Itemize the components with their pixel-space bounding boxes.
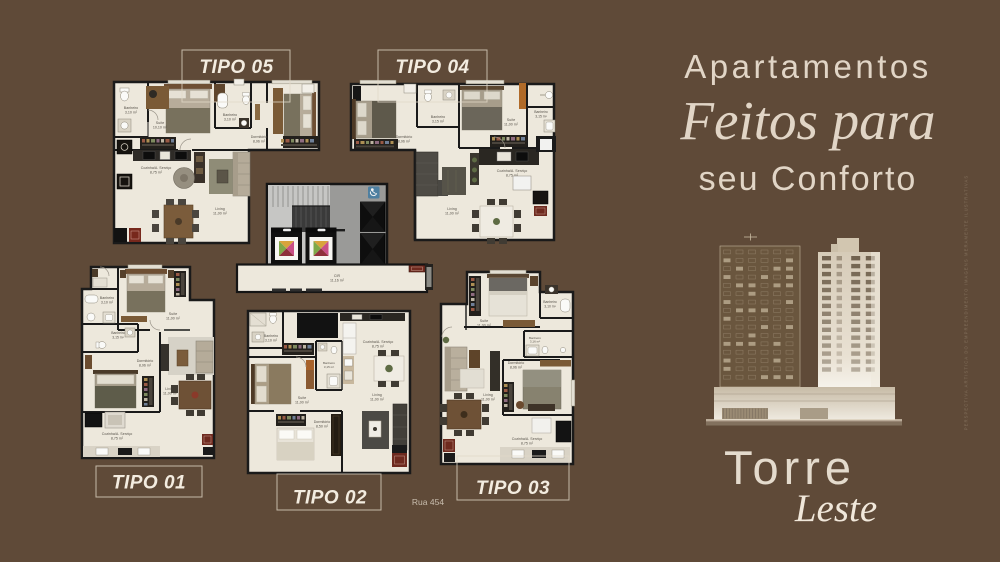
svg-text:10,10 m²: 10,10 m² [153, 126, 168, 130]
svg-text:Living: Living [483, 393, 492, 397]
svg-text:TIPO 01: TIPO 01 [112, 473, 186, 494]
svg-text:TIPO 04: TIPO 04 [395, 57, 469, 78]
svg-text:3,15 m²: 3,15 m² [112, 335, 124, 339]
svg-text:3,10 m²: 3,10 m² [265, 339, 278, 343]
svg-text:11,00 m²: 11,00 m² [477, 324, 492, 328]
svg-text:Suíte: Suíte [169, 312, 177, 316]
svg-text:Banheiro: Banheiro [264, 334, 278, 338]
svg-text:TIPO 02: TIPO 02 [293, 488, 367, 509]
svg-text:11,00 m²: 11,00 m² [481, 398, 496, 402]
svg-text:8,75 m²: 8,75 m² [111, 437, 124, 441]
svg-text:11,00 m²: 11,00 m² [295, 401, 310, 405]
svg-text:8,75 m²: 8,75 m² [521, 442, 534, 446]
svg-text:11,00 m²: 11,00 m² [445, 212, 460, 216]
svg-text:Suíte: Suíte [156, 121, 164, 125]
svg-text:Living: Living [215, 207, 224, 211]
svg-text:Cozinha/A. Serviço: Cozinha/A. Serviço [102, 432, 133, 436]
svg-text:Banheiro: Banheiro [223, 113, 237, 117]
svg-text:Banheiro: Banheiro [543, 300, 557, 304]
svg-text:8,96 m²: 8,96 m² [253, 140, 266, 144]
svg-text:3,10 m²: 3,10 m² [125, 111, 138, 115]
svg-text:8,50 m²: 8,50 m² [316, 425, 329, 429]
svg-text:Dormitório: Dormitório [396, 135, 413, 139]
svg-text:11,00 m²: 11,00 m² [166, 317, 181, 321]
svg-text:Cozinha/A. Serviço: Cozinha/A. Serviço [363, 340, 394, 344]
svg-text:Cozinha/A. Serviço: Cozinha/A. Serviço [497, 169, 528, 173]
svg-text:3,10 m²: 3,10 m² [224, 118, 237, 122]
svg-text:11,00 m²: 11,00 m² [504, 123, 519, 127]
svg-text:Suíte: Suíte [480, 319, 488, 323]
svg-text:Banheiro: Banheiro [124, 106, 138, 110]
svg-text:Cozinha/A. Serviço: Cozinha/A. Serviço [512, 437, 543, 441]
svg-text:Suíte: Suíte [298, 396, 306, 400]
svg-text:Banheiro: Banheiro [100, 296, 114, 300]
svg-text:11,16 m²: 11,16 m² [330, 279, 345, 283]
svg-text:3,15 m²: 3,15 m² [324, 365, 334, 369]
svg-text:3,15 m²: 3,15 m² [432, 120, 445, 124]
svg-text:TIPO 03: TIPO 03 [476, 478, 550, 499]
svg-text:3,10 m²: 3,10 m² [544, 304, 556, 308]
svg-text:3,16 m²: 3,16 m² [530, 340, 540, 344]
svg-text:8,96 m²: 8,96 m² [510, 366, 523, 370]
svg-text:3,15 m²: 3,15 m² [535, 114, 547, 118]
svg-text:Dormitório: Dormitório [137, 359, 154, 363]
svg-text:11,00 m²: 11,00 m² [213, 212, 228, 216]
svg-text:TIPO 05: TIPO 05 [199, 57, 273, 78]
svg-text:8,96 m²: 8,96 m² [398, 140, 411, 144]
svg-text:11,00 m²: 11,00 m² [370, 398, 385, 402]
svg-text:Living: Living [447, 207, 456, 211]
svg-text:Living: Living [372, 393, 381, 397]
svg-text:3,10 m²: 3,10 m² [101, 301, 114, 305]
svg-text:8,96 m²: 8,96 m² [139, 364, 152, 368]
svg-text:8,75 m²: 8,75 m² [150, 171, 163, 175]
svg-text:Banheiro: Banheiro [431, 115, 445, 119]
svg-text:CIR: CIR [334, 274, 341, 278]
svg-text:Suíte: Suíte [507, 118, 515, 122]
svg-text:Banheiro: Banheiro [111, 331, 125, 335]
svg-text:Dormitório: Dormitório [314, 420, 331, 424]
svg-text:Dormitório: Dormitório [508, 361, 525, 365]
svg-text:Cozinha/A. Serviço: Cozinha/A. Serviço [141, 166, 172, 170]
svg-text:Banheiro: Banheiro [534, 110, 548, 114]
svg-text:Dormitório: Dormitório [251, 135, 268, 139]
svg-text:8,75 m²: 8,75 m² [372, 345, 385, 349]
